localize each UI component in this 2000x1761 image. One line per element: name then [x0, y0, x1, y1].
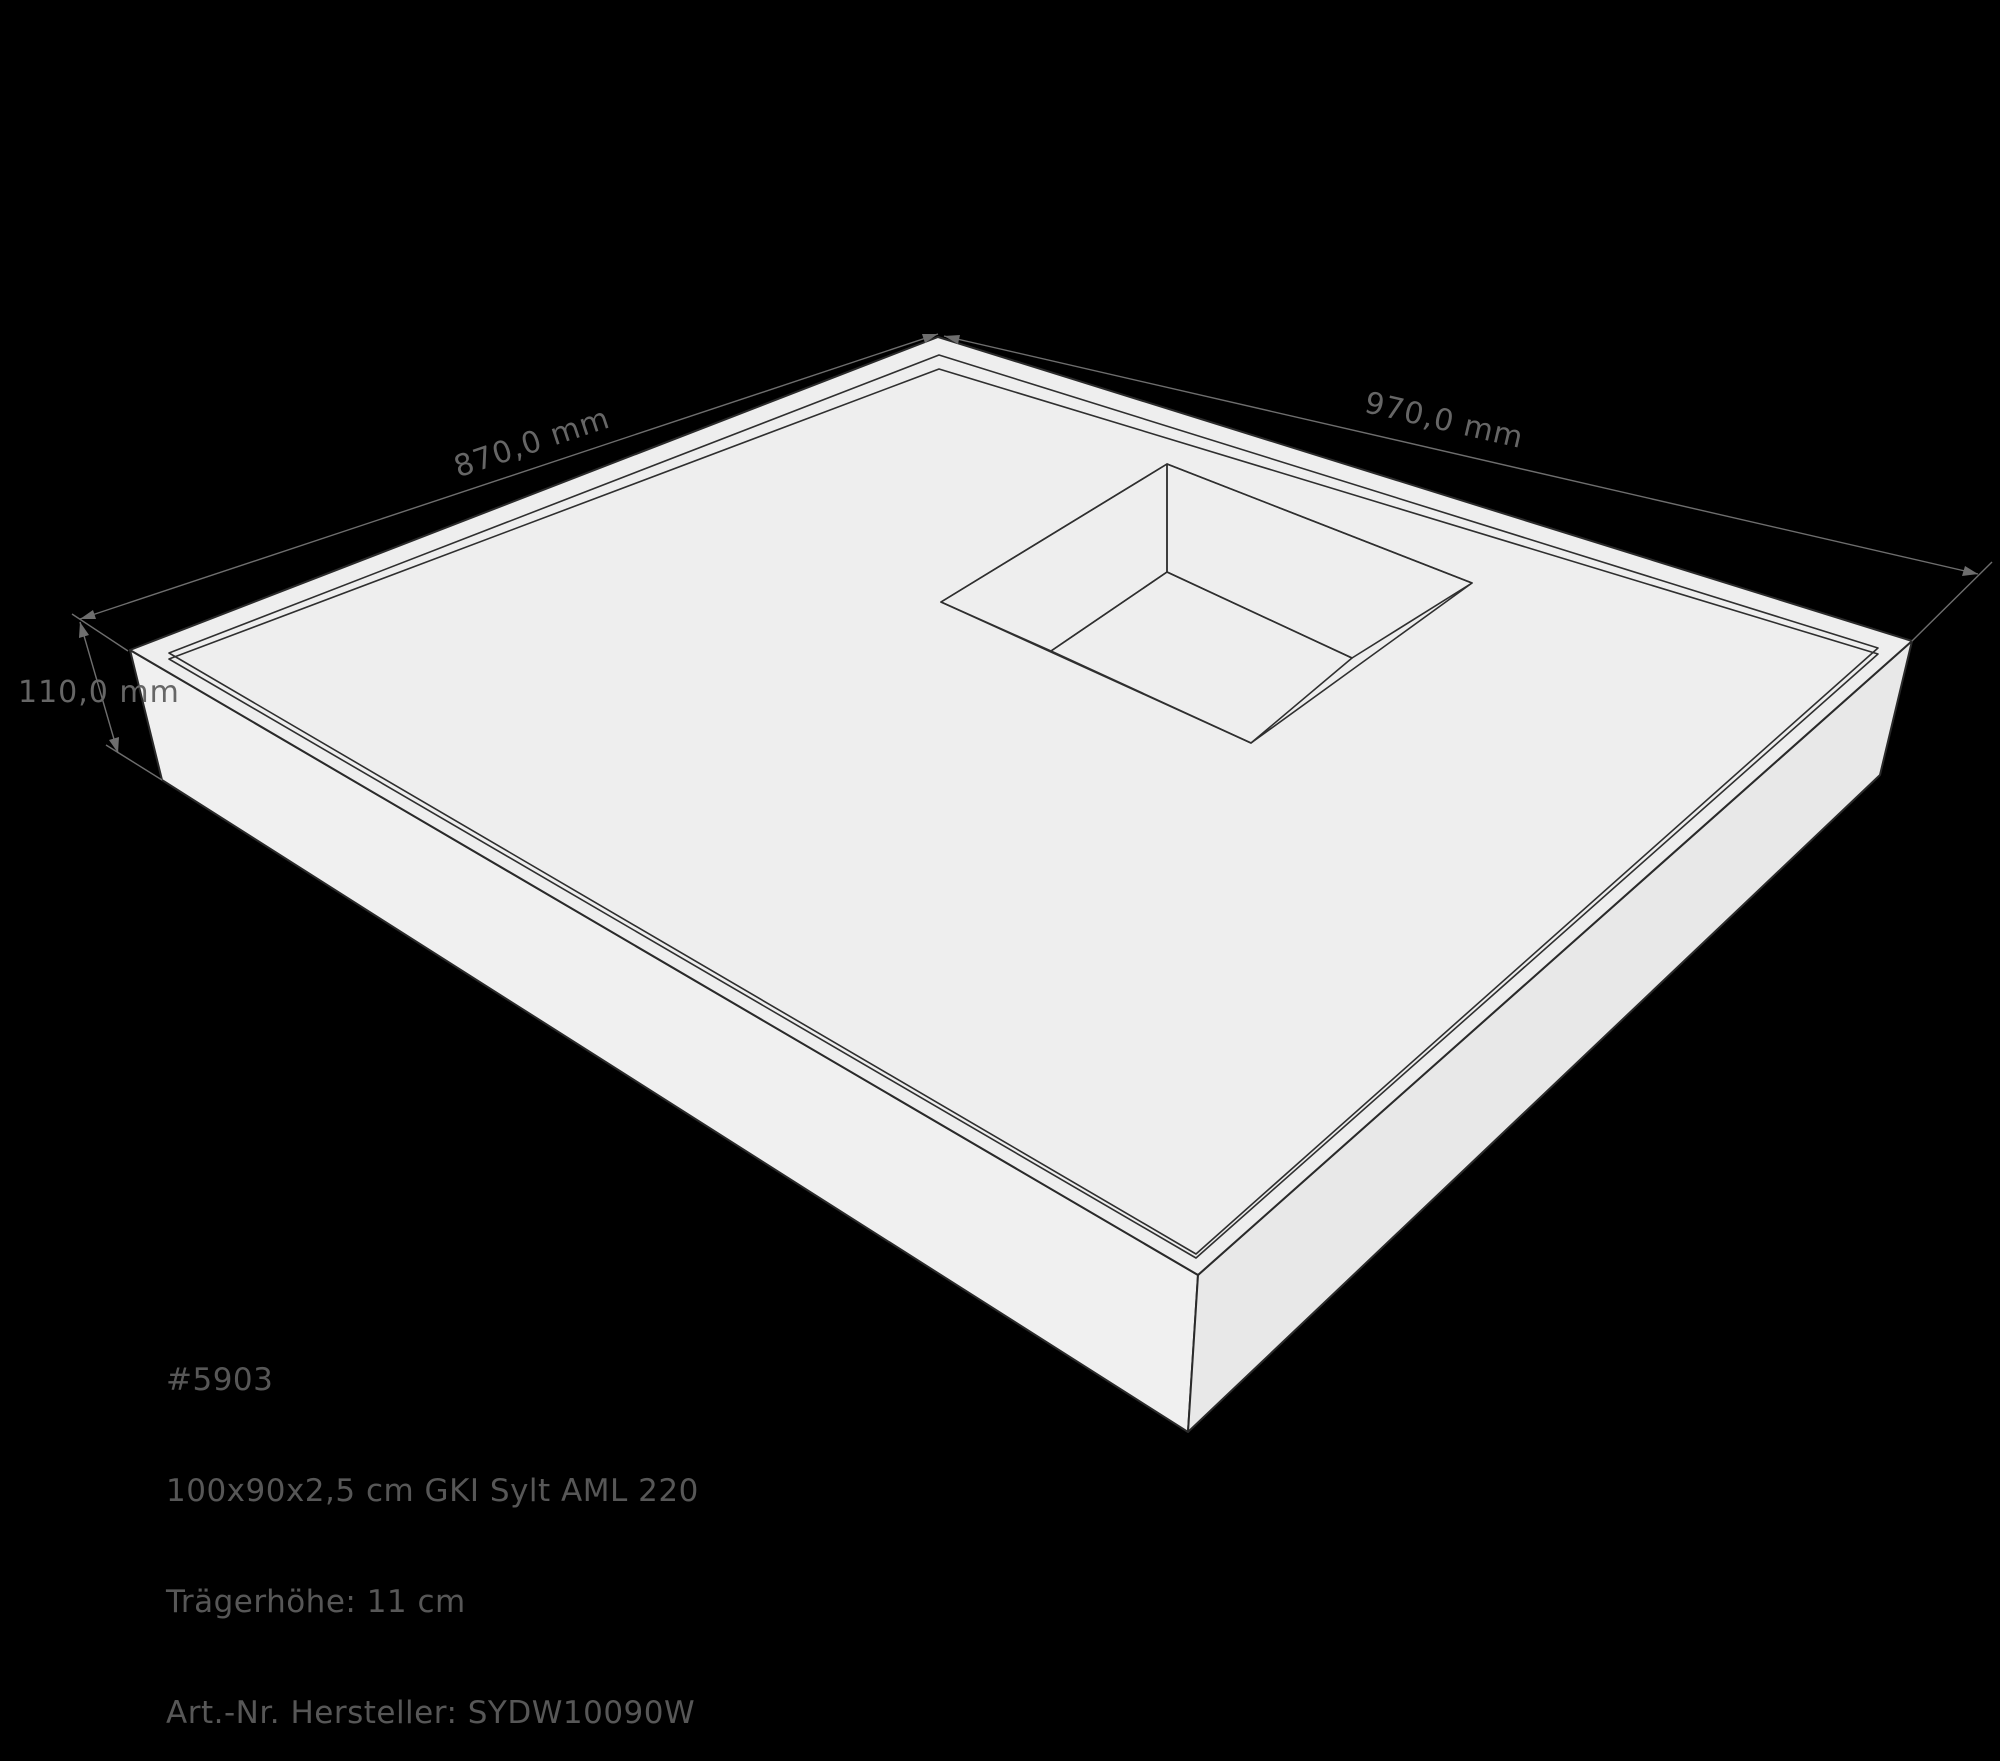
product-info-line-id: #5903 — [166, 1362, 699, 1399]
tray-rim-surface — [130, 337, 1912, 1275]
dimension-width-extension-line — [1912, 562, 1992, 641]
dimension-width-arrow-end — [1962, 566, 1978, 576]
product-info-line-size: 100x90x2,5 cm GKI Sylt AML 220 — [166, 1473, 699, 1510]
dimension-width-label: 970,0 mm — [1361, 385, 1527, 456]
product-info: #5903 100x90x2,5 cm GKI Sylt AML 220 Trä… — [166, 1288, 699, 1761]
dimension-height-label: 110,0 mm — [18, 675, 180, 710]
product-info-line-artnr: Art.-Nr. Hersteller: SYDW10090W — [166, 1695, 699, 1732]
dimension-depth-arrow-start — [80, 610, 96, 619]
diagram-canvas: 970,0 mm 870,0 mm 110,0 mm #5903 100x90x… — [0, 0, 2000, 1761]
dimension-height-extension-line-bottom — [106, 745, 162, 780]
product-info-line-height: Trägerhöhe: 11 cm — [166, 1584, 699, 1621]
